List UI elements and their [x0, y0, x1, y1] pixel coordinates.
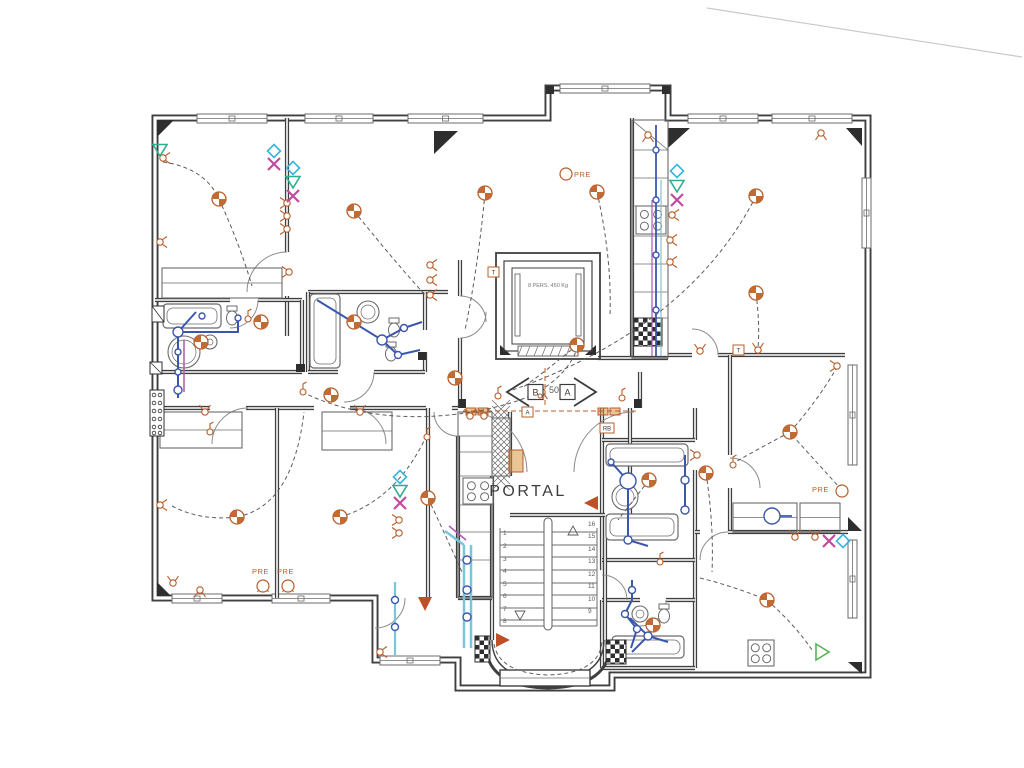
- pipe-node: [608, 459, 614, 465]
- checker-cell: [620, 645, 625, 650]
- plumbing-pipe: [445, 531, 464, 545]
- checker-cell: [643, 345, 648, 346]
- door-jamb: [634, 399, 641, 408]
- wiring-run: [790, 369, 836, 432]
- pipe-node: [199, 313, 205, 319]
- door-arc: [460, 296, 486, 322]
- stair-number: 8: [503, 618, 507, 625]
- door-arc: [375, 598, 405, 628]
- light-quadrant: [333, 510, 340, 517]
- light-quadrant: [261, 322, 268, 329]
- power-socket-icon: [690, 450, 700, 461]
- pipe-node: [620, 473, 636, 489]
- checker-cell: [639, 341, 644, 346]
- ceiling-light: [347, 315, 361, 329]
- stair-direction-up-icon: [568, 526, 578, 535]
- checker-cell: [620, 663, 625, 665]
- dark-wedge: [157, 120, 174, 137]
- tag-box-label: A: [525, 411, 529, 417]
- pre-outlet-circle: [282, 580, 294, 592]
- wiring-run: [340, 441, 424, 517]
- power-socket-icon: [669, 210, 679, 221]
- portal-label: PORTAL: [489, 483, 567, 500]
- socket-body: [645, 132, 651, 138]
- ceiling-light: [749, 286, 763, 300]
- meter-outline: [150, 390, 164, 436]
- ceiling-light: [324, 388, 338, 402]
- stair-number: 4: [503, 568, 507, 575]
- ceiling-light: [590, 185, 604, 199]
- light-quadrant: [653, 625, 660, 632]
- switch-lever: [498, 386, 502, 393]
- light-quadrant: [219, 199, 226, 206]
- socket-body: [755, 347, 761, 353]
- hatch-block: [492, 400, 510, 490]
- light-quadrant: [254, 315, 261, 322]
- socket-body: [170, 580, 176, 586]
- checker-block: [634, 318, 662, 346]
- tub-outline: [606, 444, 688, 466]
- checker-cell: [489, 650, 491, 655]
- meter-panel: [150, 390, 164, 436]
- sink: [632, 606, 648, 622]
- switch-lever: [303, 382, 307, 389]
- checker-cell: [657, 332, 662, 337]
- light-switch-icon: [495, 386, 502, 399]
- toilet-bowl: [659, 609, 670, 623]
- pre-outlet: [836, 485, 848, 497]
- switch-lever: [248, 309, 252, 316]
- pre-outlet: [282, 580, 294, 592]
- apartment-a-label: A: [564, 388, 570, 398]
- ceiling-light: [646, 618, 660, 632]
- switch-body: [730, 462, 736, 468]
- door-jamb: [662, 86, 670, 94]
- pipe-node: [634, 626, 641, 633]
- pipe-node: [463, 613, 471, 621]
- stair-number: 16: [588, 521, 596, 528]
- elevator-door: [518, 346, 578, 356]
- stair-direction-down-icon: [515, 611, 525, 620]
- switch-body: [300, 389, 306, 395]
- door-jamb: [546, 86, 554, 94]
- checker-cell: [484, 654, 489, 659]
- ceiling-light: [478, 186, 492, 200]
- light-quadrant: [428, 498, 435, 505]
- closet: [162, 268, 282, 298]
- checker-cell: [484, 645, 489, 650]
- light-quadrant: [756, 293, 763, 300]
- socket-body: [157, 502, 163, 508]
- pre-outlet-circle: [836, 485, 848, 497]
- stair-number: 9: [588, 608, 592, 615]
- light-switch-icon: [300, 382, 307, 395]
- socket-body: [467, 413, 473, 419]
- ceiling-light: [347, 204, 361, 218]
- checker-cell: [615, 649, 620, 654]
- light-quadrant: [749, 286, 756, 293]
- socket-body: [197, 587, 203, 593]
- pipe-node: [175, 349, 181, 355]
- staircase: [500, 518, 597, 686]
- window: [560, 84, 650, 93]
- light-quadrant: [790, 432, 797, 439]
- socket-body: [427, 292, 433, 298]
- checker-cell: [657, 323, 662, 328]
- checker-cell: [484, 636, 489, 641]
- window: [197, 114, 267, 123]
- elevator-wall: [504, 261, 592, 351]
- arrow-chevron: [574, 378, 596, 406]
- door-jamb: [418, 352, 426, 360]
- light-quadrant: [597, 192, 604, 199]
- scan-artifact: [707, 8, 1022, 57]
- tag-box-label: T: [492, 271, 496, 277]
- stair-number: 2: [503, 543, 507, 550]
- socket-body: [286, 269, 292, 275]
- accent-x-icon: [671, 194, 683, 206]
- window: [272, 594, 330, 603]
- stair-rail: [544, 518, 552, 630]
- checker-cell: [648, 323, 653, 328]
- accent-triangle-icon: [670, 181, 684, 193]
- wiring-run: [706, 473, 712, 572]
- power-socket-icon: [168, 576, 179, 586]
- dark-wedge: [434, 131, 458, 154]
- power-socket-icon: [427, 275, 437, 286]
- checker-cell: [606, 649, 611, 654]
- checker-cell: [648, 332, 653, 337]
- stair-number: 1: [503, 530, 507, 537]
- window: [408, 114, 483, 123]
- stair-number: 13: [588, 558, 596, 565]
- closet: [322, 412, 392, 450]
- door-arc: [692, 329, 718, 355]
- checker-cell: [475, 636, 480, 641]
- pipe-node: [764, 508, 780, 524]
- light-quadrant: [354, 322, 361, 329]
- dark-wedge: [157, 582, 171, 596]
- checker-cell: [643, 336, 648, 341]
- ceiling-light: [230, 510, 244, 524]
- accent-x-icon: [394, 497, 406, 509]
- elevator-wall: [512, 268, 584, 344]
- tag-box-label: RB: [603, 427, 611, 433]
- socket-body: [377, 649, 383, 655]
- light-switch-icon: [619, 388, 626, 401]
- pipe-node: [653, 147, 659, 153]
- power-socket-icon: [282, 267, 292, 278]
- switch-body: [245, 316, 251, 322]
- window: [848, 540, 857, 618]
- switch-body: [495, 393, 501, 399]
- ceiling-light: [570, 338, 584, 352]
- checker-block: [475, 636, 490, 662]
- elevator-rail: [576, 274, 581, 336]
- light-switch-icon: [245, 309, 252, 322]
- dark-wedge: [848, 517, 862, 531]
- socket-body: [667, 259, 673, 265]
- toilet-tank: [659, 604, 669, 609]
- dimension-label: 50: [549, 385, 559, 395]
- power-socket-icon: [427, 260, 437, 271]
- switch-body: [424, 434, 430, 440]
- light-quadrant: [421, 491, 428, 498]
- light-quadrant: [699, 466, 706, 473]
- socket-body: [396, 517, 402, 523]
- stair-number: 14: [588, 546, 596, 553]
- checker-cell: [606, 658, 611, 663]
- ceiling-light: [760, 593, 774, 607]
- light-switch-icon: [207, 422, 214, 435]
- checker-cell: [648, 341, 653, 346]
- power-socket-icon: [392, 528, 402, 539]
- checker-cell: [475, 654, 480, 659]
- pipe-node: [392, 624, 399, 631]
- door-jamb: [296, 364, 305, 372]
- socket-body: [357, 409, 363, 415]
- power-socket-icon: [695, 344, 706, 354]
- door-arc: [247, 252, 287, 292]
- stair-number: 10: [588, 596, 596, 603]
- light-quadrant: [347, 204, 354, 211]
- socket-body: [818, 130, 824, 136]
- stove: [748, 640, 774, 666]
- ceiling-light: [254, 315, 268, 329]
- door-arc: [344, 372, 374, 402]
- socket-body: [157, 239, 163, 245]
- pipe-node: [681, 476, 689, 484]
- elevator-rail: [515, 274, 520, 336]
- socket-body: [669, 212, 675, 218]
- checker-cell: [606, 640, 611, 645]
- wiring-run: [756, 293, 759, 347]
- wiring-run: [163, 162, 252, 286]
- stair-number: 12: [588, 571, 596, 578]
- switch-lever: [210, 422, 214, 429]
- light-quadrant: [760, 593, 767, 600]
- checker-cell: [611, 663, 616, 665]
- light-quadrant: [478, 186, 485, 193]
- arrow-chevron: [507, 378, 529, 406]
- accent-diamond-icon: [268, 145, 281, 158]
- dark-wedge: [846, 128, 862, 146]
- ceiling-light: [642, 473, 656, 487]
- tag-box-label: T: [737, 349, 741, 355]
- socket-body: [481, 413, 487, 419]
- utility-box: [152, 306, 164, 322]
- wiring-run: [354, 211, 428, 298]
- pipe-node: [377, 335, 387, 345]
- bathtub: [606, 444, 688, 466]
- checker-cell: [634, 318, 639, 323]
- accent-diamond-icon: [671, 165, 684, 178]
- bathtub: [606, 514, 678, 540]
- socket-body: [396, 530, 402, 536]
- sink-bowl: [632, 606, 648, 622]
- light-quadrant: [340, 517, 347, 524]
- pipe-node: [175, 369, 181, 375]
- door-arc: [212, 408, 248, 444]
- ceiling-light: [699, 466, 713, 480]
- accent-x-icon: [268, 158, 280, 170]
- wiring-run: [237, 412, 304, 517]
- wiring-run: [172, 506, 237, 518]
- switch-body: [657, 559, 663, 565]
- stove-outline: [748, 640, 774, 666]
- floor-plan-svg: 8 PERS. 450 Kg12345678161514131211109PRE…: [0, 0, 1024, 768]
- checker-cell: [480, 641, 485, 646]
- light-quadrant: [212, 192, 219, 199]
- checker-cell: [475, 645, 480, 650]
- pre-label: PRE: [812, 485, 829, 494]
- power-socket-icon: [392, 515, 402, 526]
- window: [862, 178, 871, 248]
- light-quadrant: [756, 196, 763, 203]
- socket-body: [694, 452, 700, 458]
- light-switch-icon: [730, 455, 737, 468]
- ceiling-light: [783, 425, 797, 439]
- light-quadrant: [347, 315, 354, 322]
- socket-body: [667, 237, 673, 243]
- accent-triangle-icon: [393, 486, 407, 498]
- pipe-node: [463, 556, 471, 564]
- pipe-node: [629, 587, 636, 594]
- light-quadrant: [646, 618, 653, 625]
- door-jamb: [459, 399, 466, 408]
- checker-cell: [615, 640, 620, 645]
- ceiling-light: [194, 335, 208, 349]
- utility-box: [150, 362, 162, 374]
- checker-cell: [643, 327, 648, 332]
- accent-green-triangle-icon: [816, 644, 829, 660]
- checker-cell: [657, 341, 662, 346]
- window: [688, 114, 758, 123]
- closet: [800, 503, 840, 532]
- light-quadrant: [237, 517, 244, 524]
- wiring-run: [465, 193, 485, 330]
- wiring-run: [792, 435, 840, 488]
- switch-lever: [622, 388, 626, 395]
- checker-cell: [624, 649, 626, 654]
- wiring-run: [597, 192, 610, 316]
- checker-cell: [615, 658, 620, 663]
- dark-wedge: [668, 128, 690, 148]
- socket-body: [202, 409, 208, 415]
- pre-label: PRE: [252, 567, 269, 576]
- light-quadrant: [706, 473, 713, 480]
- ceiling-light: [448, 371, 462, 385]
- door-arc: [700, 532, 728, 560]
- checker-cell: [611, 645, 616, 650]
- light-quadrant: [354, 211, 361, 218]
- dark-wedge: [500, 345, 511, 355]
- pre-outlet-circle: [257, 580, 269, 592]
- window: [380, 656, 440, 665]
- checker-cell: [480, 659, 485, 663]
- window: [848, 365, 857, 465]
- power-socket-icon: [830, 361, 840, 372]
- pipe-node: [653, 197, 659, 203]
- light-quadrant: [485, 193, 492, 200]
- ceiling-light: [212, 192, 226, 206]
- light-quadrant: [194, 335, 201, 342]
- dark-wedge: [585, 345, 596, 355]
- stair-number: 11: [588, 583, 595, 590]
- light-quadrant: [649, 480, 656, 487]
- checker-cell: [611, 654, 616, 659]
- pipe-node: [622, 611, 629, 618]
- vent-triangle-icon: [418, 597, 432, 611]
- pipe-node: [235, 315, 241, 321]
- pre-outlet: [257, 580, 269, 592]
- stair-number: 5: [503, 581, 507, 588]
- accent-x-icon: [823, 535, 835, 547]
- checker-block: [606, 640, 626, 664]
- window: [305, 114, 373, 123]
- checker-cell: [639, 332, 644, 337]
- socket-body: [427, 277, 433, 283]
- ceiling-light: [749, 189, 763, 203]
- stair-number: 7: [503, 606, 507, 613]
- socket-body: [834, 363, 840, 369]
- pre-outlet: [560, 168, 572, 180]
- pipe-node: [174, 386, 182, 394]
- door-arc: [350, 408, 386, 444]
- checker-cell: [624, 640, 626, 645]
- pre-label: PRE: [277, 567, 294, 576]
- socket-body: [812, 534, 818, 540]
- pipe-node: [681, 506, 689, 514]
- socket-body: [792, 534, 798, 540]
- checker-cell: [489, 659, 491, 663]
- pipe-node: [173, 327, 183, 337]
- elevator-label: 8 PERS. 450 Kg: [528, 283, 568, 289]
- socket-body: [284, 213, 290, 219]
- wiring-run: [700, 578, 767, 600]
- light-quadrant: [448, 371, 455, 378]
- wiring-run: [737, 432, 790, 461]
- toilet-tank: [227, 306, 237, 311]
- closet: [160, 412, 242, 448]
- stair-number: 3: [503, 556, 507, 563]
- checker-cell: [624, 658, 626, 663]
- checker-cell: [634, 336, 639, 341]
- ceiling-light: [421, 491, 435, 505]
- door-arc: [460, 312, 486, 338]
- vent-triangle-icon: [584, 496, 598, 510]
- switch-body: [207, 429, 213, 435]
- light-quadrant: [749, 189, 756, 196]
- checker-cell: [620, 654, 625, 659]
- pre-outlet-circle: [560, 168, 572, 180]
- light-quadrant: [642, 473, 649, 480]
- pipe-node: [395, 352, 402, 359]
- toilet-tank: [389, 318, 399, 323]
- power-socket-icon: [816, 130, 827, 140]
- socket-body: [697, 348, 703, 354]
- pipe-node: [644, 632, 652, 640]
- stair-number: 6: [503, 593, 507, 600]
- stair-number: 15: [588, 533, 596, 540]
- checker-cell: [489, 641, 491, 646]
- light-quadrant: [570, 338, 577, 345]
- light-quadrant: [331, 395, 338, 402]
- light-quadrant: [783, 425, 790, 432]
- pipe-node: [624, 536, 632, 544]
- checker-cell: [634, 345, 639, 346]
- pipe-node: [463, 586, 471, 594]
